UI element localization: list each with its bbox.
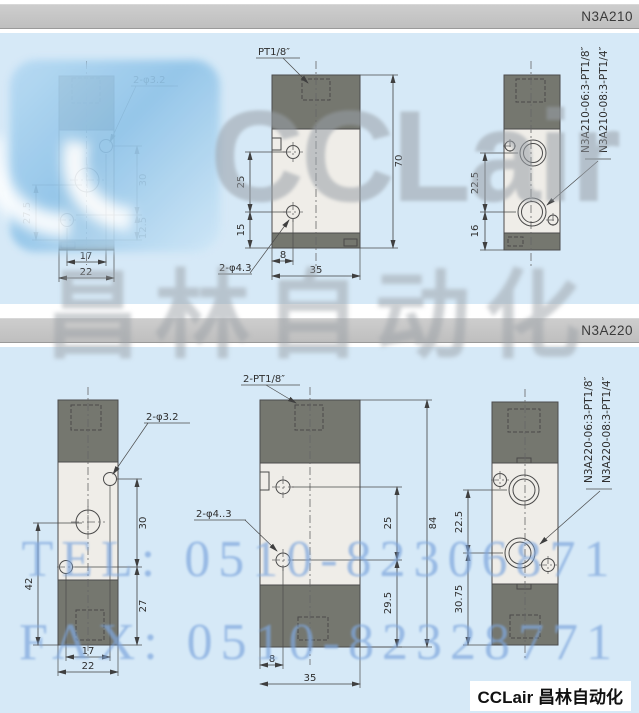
dim-35: 35 xyxy=(304,673,317,684)
brand-logo-watermark xyxy=(10,60,220,252)
hole-callout: 2-φ4..3 xyxy=(196,509,232,520)
model-title-n3a210: N3A210 xyxy=(581,9,639,24)
dim-29-5: 29.5 xyxy=(383,592,394,614)
dim-30: 30 xyxy=(138,517,149,530)
dim-25: 25 xyxy=(383,517,394,530)
brand-watermark: CCLair xyxy=(210,81,618,231)
port-callout: PT1/8″ xyxy=(258,47,290,58)
footer-brand-label: CCLair 昌林自动化 xyxy=(470,681,631,711)
drawing-panel-n3a220: TEL: 0510-82306871 FAX: 0510-82328771 42 xyxy=(0,347,639,713)
variant-label-pt18: N3A220-06:3-PT1/8″ xyxy=(583,376,595,483)
dim-84: 84 xyxy=(428,517,439,530)
tel-watermark: TEL: 0510-82306871 xyxy=(0,530,639,589)
hole-callout: 2-φ3.2 xyxy=(146,412,178,423)
dim-27: 27 xyxy=(138,600,149,613)
brand-cn-watermark: 昌林自动化 xyxy=(0,238,639,377)
section-header-n3a210: N3A210 xyxy=(0,4,639,29)
variant-label-pt14: N3A220-08:3-PT1/4″ xyxy=(601,376,613,483)
fax-watermark: FAX: 0510-82328771 xyxy=(0,613,639,672)
